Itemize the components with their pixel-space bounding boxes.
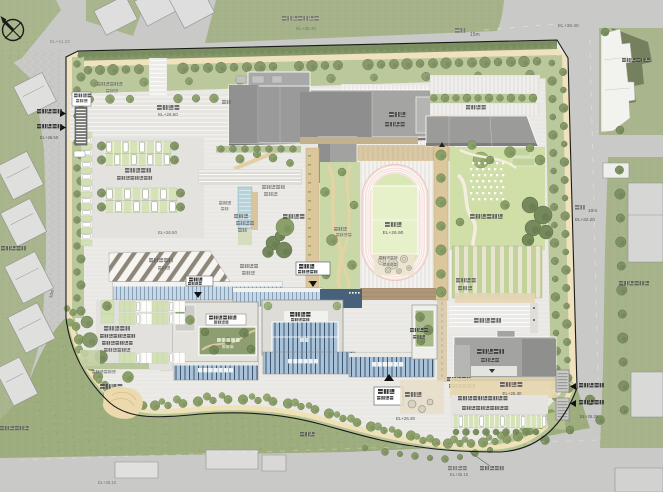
svg-text:EL+26.30: EL+26.30: [396, 416, 415, 421]
svg-text:EL+26.50: EL+26.50: [158, 112, 178, 117]
svg-text:15m: 15m: [470, 32, 480, 38]
svg-text:EL+25.10: EL+25.10: [450, 472, 469, 477]
svg-text:EL+26.50: EL+26.50: [40, 135, 59, 140]
svg-text:EL+32.20: EL+32.20: [575, 217, 595, 222]
svg-text:EL+36.40: EL+36.40: [558, 23, 579, 29]
svg-text:EL+36.40: EL+36.40: [296, 26, 316, 31]
svg-text:EL+26.50: EL+26.50: [158, 230, 177, 235]
svg-text:EL+41.33: EL+41.33: [50, 39, 70, 44]
svg-text:EL+26.30: EL+26.30: [580, 414, 599, 419]
svg-text:EL+25.10: EL+25.10: [98, 480, 117, 485]
svg-text:10m: 10m: [588, 208, 597, 214]
svg-text:EL+26.90: EL+26.90: [383, 230, 404, 236]
